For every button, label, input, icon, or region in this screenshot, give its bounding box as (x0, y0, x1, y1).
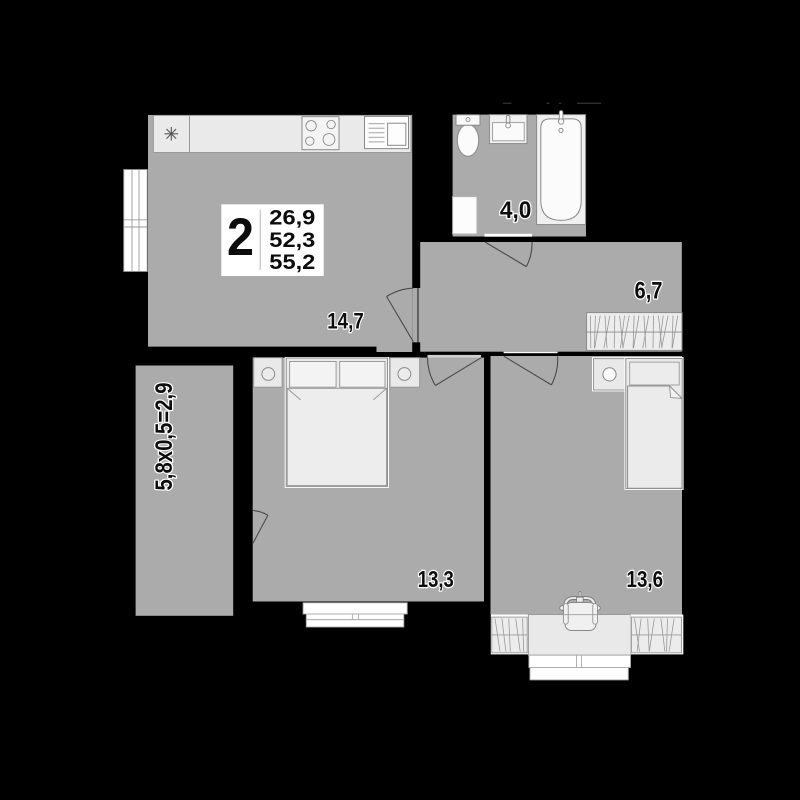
svg-text:13,3: 13,3 (418, 566, 454, 592)
svg-text:52,3: 52,3 (269, 228, 315, 252)
svg-text:14,7: 14,7 (327, 309, 364, 334)
svg-text:26,9: 26,9 (269, 206, 315, 230)
svg-text:6,7: 6,7 (635, 278, 663, 305)
svg-text:4,0: 4,0 (500, 197, 532, 224)
svg-text:5,8x0,5=2,9: 5,8x0,5=2,9 (151, 383, 178, 491)
svg-text:2: 2 (227, 208, 254, 267)
svg-text:13,6: 13,6 (627, 566, 664, 592)
svg-text:55,2: 55,2 (269, 250, 315, 274)
